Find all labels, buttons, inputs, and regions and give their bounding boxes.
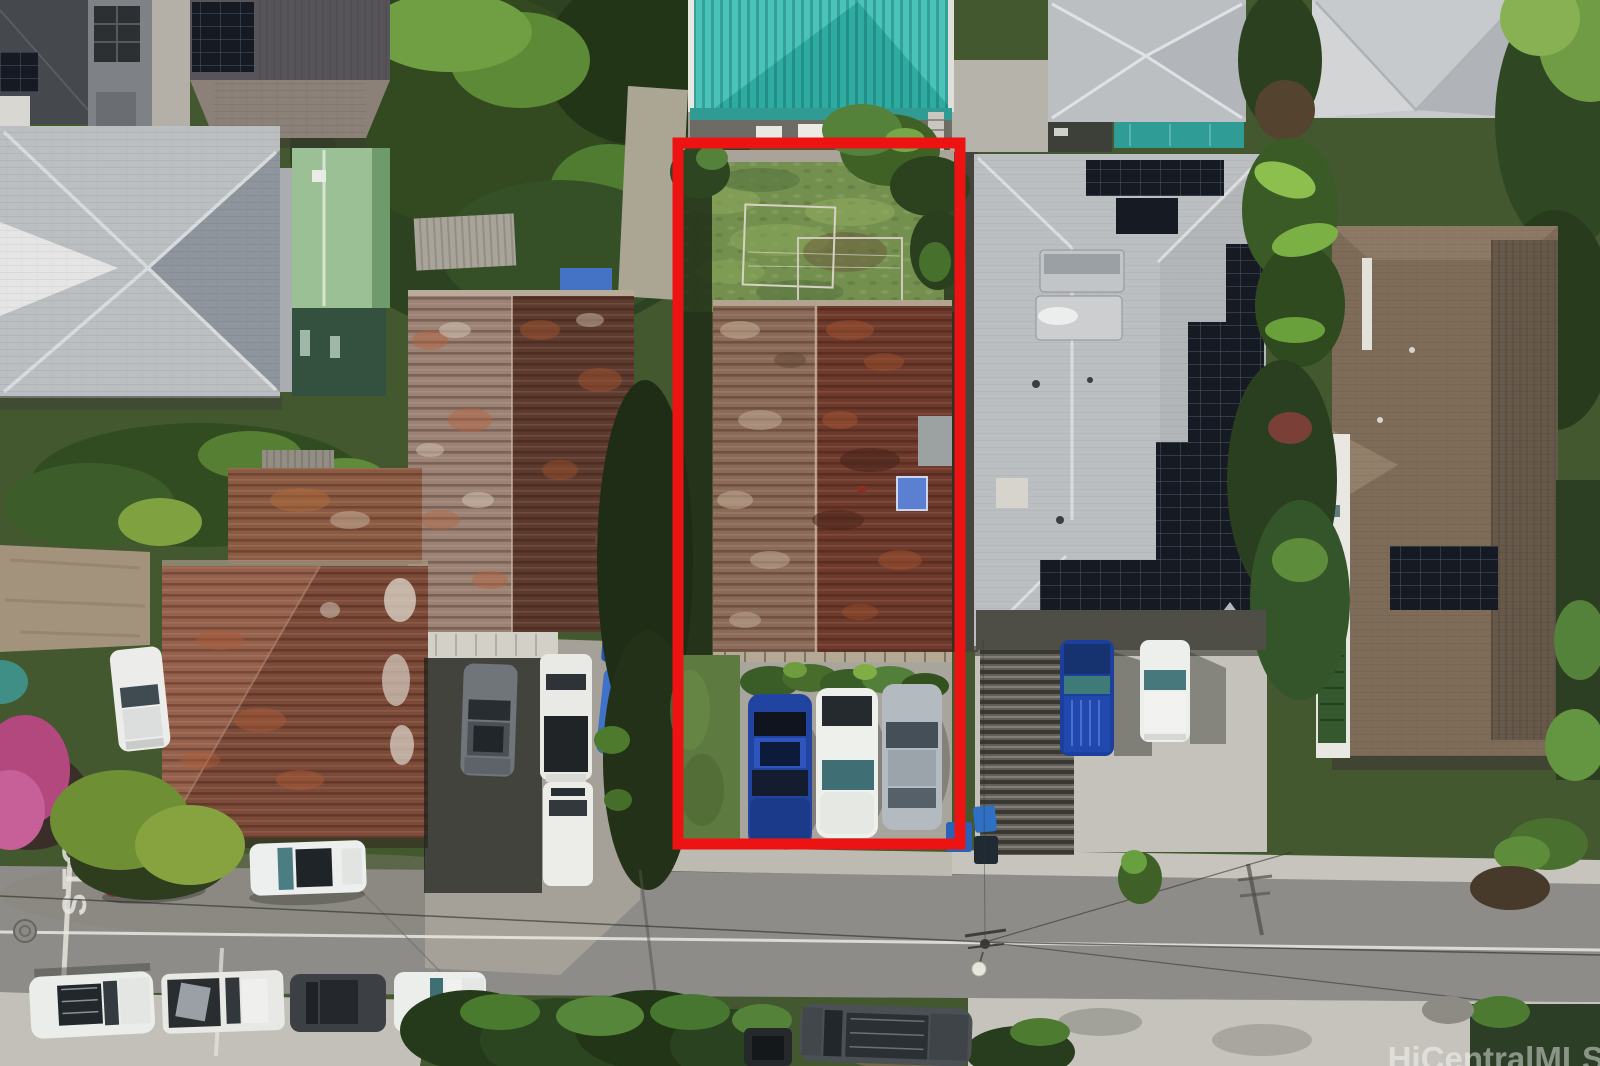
- white-truck: [540, 654, 592, 782]
- left-hip-roof-house: [0, 126, 320, 410]
- white-car-left: [109, 646, 171, 753]
- white-sedan: [247, 840, 367, 907]
- aerial-photo: STOP: [0, 0, 1600, 1066]
- white-pickup: [161, 970, 285, 1034]
- dark-suv: [290, 974, 386, 1032]
- top-right-hip-house: [1048, 0, 1246, 152]
- roof-patch: [918, 416, 952, 466]
- street-lamp: [972, 962, 986, 976]
- landing: [996, 478, 1028, 508]
- brown-roof-house: [1316, 226, 1558, 770]
- motorcycle: [175, 983, 210, 1022]
- silver-car: [882, 684, 950, 830]
- subject-house: [713, 300, 952, 674]
- solar-panel-house: [974, 154, 1266, 656]
- green-metal-roof-building: [292, 148, 390, 396]
- white-car: [816, 688, 888, 838]
- top-right-pyramid-roof-house: [1312, 0, 1522, 118]
- chimney: [312, 170, 326, 182]
- teal-tarp: [1114, 122, 1244, 148]
- blue-bin: [973, 805, 998, 833]
- lot-parking: [670, 655, 952, 850]
- white-truck-2: [543, 782, 593, 886]
- manhole: [14, 920, 36, 942]
- mls-watermark: HiCentralMLS: [1388, 1040, 1600, 1066]
- corrugated-shed: [414, 213, 517, 270]
- blue-tarp-patch: [897, 477, 927, 510]
- dark-bin: [974, 836, 998, 864]
- curb-bush: [1121, 850, 1147, 874]
- top-left-shingle-solar-house: [190, 0, 390, 148]
- white-suv: [28, 963, 155, 1039]
- small-dark-car: [744, 1028, 792, 1066]
- dark-gray-suv: [799, 1003, 973, 1066]
- subject-lot: [670, 104, 970, 850]
- gray-car: [460, 663, 518, 777]
- top-left-dark-roof-house: [0, 0, 190, 136]
- carport-roof: [426, 632, 558, 658]
